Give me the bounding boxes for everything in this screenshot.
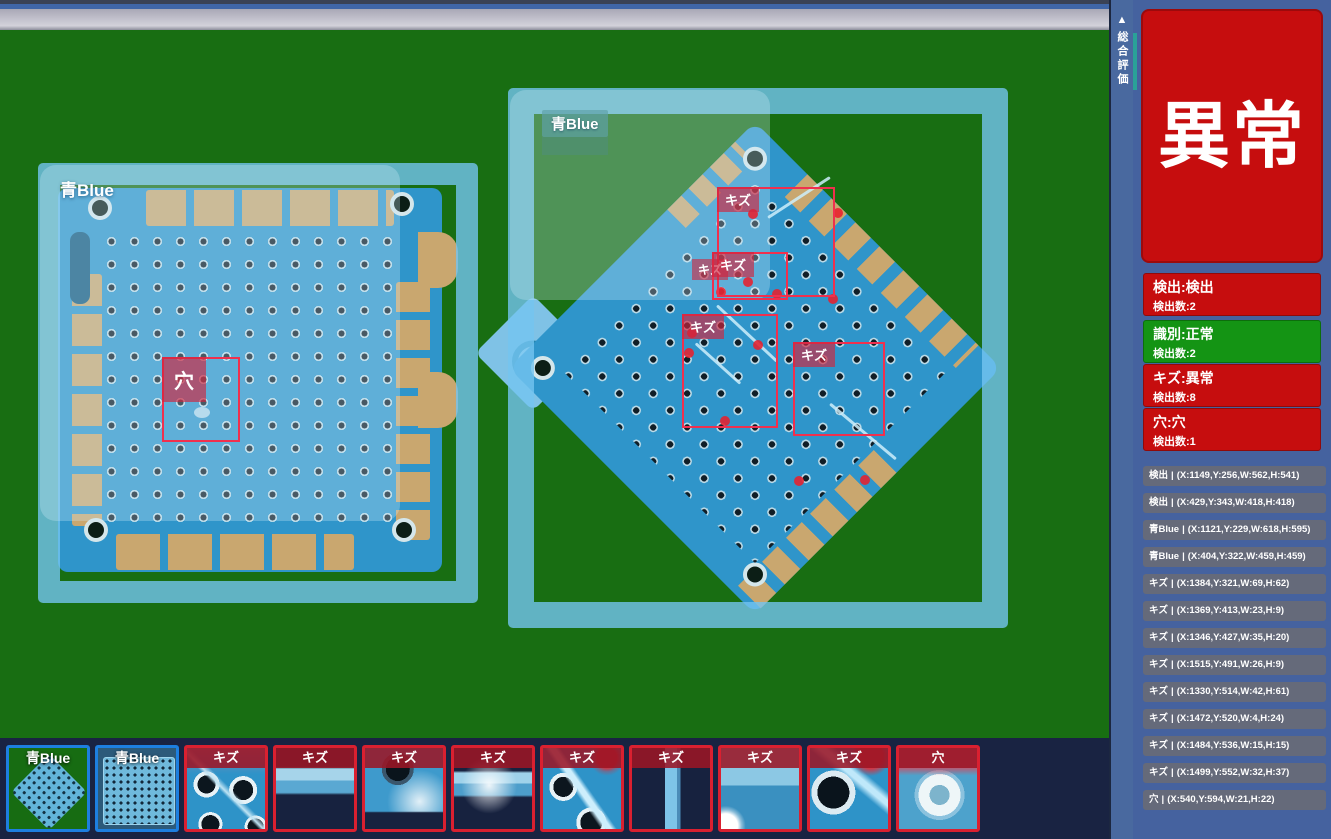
thumbnail-label: キズ — [810, 748, 888, 768]
defect-box-label: キズ — [717, 187, 759, 212]
detection-row-coords: (X:1499,Y:552,W:32,H:37) — [1177, 767, 1290, 778]
detection-row[interactable]: キズ|(X:1384,Y:321,W:69,H:62) — [1143, 574, 1326, 594]
detection-row-coords: (X:540,Y:594,W:21,H:22) — [1167, 794, 1274, 805]
detection-row-label: 検出 — [1149, 470, 1168, 481]
thumbnail-label: キズ — [454, 748, 532, 768]
panel-count: 検出数:2 — [1153, 345, 1311, 361]
stage-ruler-strip — [0, 9, 1109, 30]
detection-row-coords: (X:1369,Y:413,W:23,H:9) — [1177, 605, 1284, 616]
overall-status-text: 異常 — [1158, 77, 1306, 196]
detection-row-coords: (X:1472,Y:520,W:4,H:24) — [1177, 713, 1284, 724]
detection-row[interactable]: 青Blue|(X:404,Y:322,W:459,H:459) — [1143, 547, 1326, 567]
defect-thumbnail[interactable]: キズ — [807, 745, 891, 832]
thumbnail-label: キズ — [187, 748, 265, 768]
detection-row-label: 青Blue — [1149, 524, 1179, 535]
collapse-tab-label: 総合評価 — [1114, 31, 1130, 87]
defect-box-label: キズ — [682, 314, 724, 339]
detection-row-coords: (X:1384,Y:321,W:69,H:62) — [1177, 578, 1290, 589]
detection-row-separator: | — [1171, 686, 1174, 697]
detection-row[interactable]: 穴|(X:540,Y:594,W:21,H:22) — [1143, 790, 1326, 810]
defect-box-scratch[interactable]: キズ — [682, 314, 778, 428]
defect-thumbnail[interactable]: キズ — [362, 745, 446, 832]
detection-row[interactable]: 検出|(X:429,Y:343,W:418,H:418) — [1143, 493, 1326, 513]
defect-dot — [794, 476, 804, 486]
defect-box-hole[interactable]: 穴 — [162, 357, 240, 442]
defect-dot — [860, 475, 870, 485]
defect-box-label: キズ — [793, 342, 835, 367]
defect-thumbnail[interactable]: キズ — [451, 745, 535, 832]
detection-row-label: キズ — [1149, 740, 1168, 751]
thumbnail-label: キズ — [721, 748, 799, 768]
detection-row[interactable]: 青Blue|(X:1121,Y:229,W:618,H:595) — [1143, 520, 1326, 540]
detection-row[interactable]: キズ|(X:1484,Y:536,W:15,H:15) — [1143, 736, 1326, 756]
detection-row[interactable]: キズ|(X:1330,Y:514,W:42,H:61) — [1143, 682, 1326, 702]
defect-thumbnail[interactable]: キズ — [629, 745, 713, 832]
detection-row-separator: | — [1171, 713, 1174, 724]
side-panel-collapse-tab[interactable]: ▲ 総合評価 — [1109, 0, 1133, 839]
detection-row[interactable]: キズ|(X:1472,Y:520,W:4,H:24) — [1143, 709, 1326, 729]
thumbnail-label: キズ — [365, 748, 443, 768]
detection-row-separator: | — [1171, 740, 1174, 751]
defect-box-label: 穴 — [162, 357, 206, 402]
detection-row-separator: | — [1171, 605, 1174, 616]
detection-row-label: キズ — [1149, 632, 1168, 643]
detect-region-left[interactable]: 青Blue — [40, 165, 400, 521]
detection-row-separator: | — [1162, 794, 1165, 805]
result-sidebar: 異常 検出:検出 検出数:2 識別:正常 検出数:2 キズ:異常 検出数:8 穴… — [1133, 0, 1331, 839]
panel-title: 識別:正常 — [1153, 326, 1311, 342]
defect-thumbnail[interactable]: キズ — [184, 745, 268, 832]
thumbnail-strip: 青Blue青Blueキズキズキズキズキズキズキズキズ穴 — [0, 738, 1109, 839]
defect-thumbnail[interactable]: 青Blue — [6, 745, 90, 832]
thumbnail-label: キズ — [276, 748, 354, 768]
defect-thumbnail[interactable]: キズ — [273, 745, 357, 832]
detection-row-coords: (X:1484,Y:536,W:15,H:15) — [1177, 740, 1290, 751]
overlay-label-left: 青Blue — [60, 176, 114, 201]
panel-title: 穴:穴 — [1153, 414, 1311, 430]
detection-row-separator: | — [1171, 659, 1174, 670]
panel-title: 検出:検出 — [1153, 279, 1311, 295]
thumbnail-label: キズ — [632, 748, 710, 768]
thumbnail-label: 青Blue — [98, 748, 176, 768]
detection-row-label: 青Blue — [1149, 551, 1179, 562]
defect-thumbnail[interactable]: キズ — [718, 745, 802, 832]
panel-count: 検出数:2 — [1153, 298, 1311, 314]
detection-row-coords: (X:404,Y:322,W:459,H:459) — [1188, 551, 1306, 562]
summary-panel-hole[interactable]: 穴:穴 検出数:1 — [1143, 408, 1321, 451]
thumbnail-label: 穴 — [899, 748, 977, 768]
detection-row-label: キズ — [1149, 659, 1168, 670]
detection-row-separator: | — [1171, 470, 1174, 481]
detection-row-coords: (X:1346,Y:427,W:35,H:20) — [1177, 632, 1290, 643]
summary-panel-scratch[interactable]: キズ:異常 検出数:8 — [1143, 364, 1321, 407]
detection-row-coords: (X:1149,Y:256,W:562,H:541) — [1177, 470, 1300, 481]
defect-thumbnail[interactable]: 青Blue — [95, 745, 179, 832]
summary-panel-detect[interactable]: 検出:検出 検出数:2 — [1143, 273, 1321, 316]
detection-row[interactable]: キズ|(X:1499,Y:552,W:32,H:37) — [1143, 763, 1326, 783]
detection-row-label: キズ — [1149, 686, 1168, 697]
detection-row[interactable]: キズ|(X:1515,Y:491,W:26,H:9) — [1143, 655, 1326, 675]
detection-row-label: 検出 — [1149, 497, 1168, 508]
detection-row-coords: (X:1330,Y:514,W:42,H:61) — [1177, 686, 1290, 697]
defect-box-label: キズ — [712, 252, 754, 277]
panel-count: 検出数:1 — [1153, 433, 1311, 449]
detection-row[interactable]: 検出|(X:1149,Y:256,W:562,H:541) — [1143, 466, 1326, 486]
detection-row-label: キズ — [1149, 578, 1168, 589]
detection-row-coords: (X:1515,Y:491,W:26,H:9) — [1177, 659, 1284, 670]
inspection-viewport[interactable]: 青Blue 青Blue キズ キズ キズ キズ — [0, 0, 1109, 738]
panel-count: 検出数:8 — [1153, 389, 1311, 405]
detection-row[interactable]: キズ|(X:1346,Y:427,W:35,H:20) — [1143, 628, 1326, 648]
detection-row-label: 穴 — [1149, 794, 1159, 805]
inspection-app: 青Blue 青Blue キズ キズ キズ キズ — [0, 0, 1331, 839]
collapse-arrow-icon: ▲ — [1117, 14, 1128, 26]
detection-row-separator: | — [1171, 497, 1174, 508]
thumbnail-label: キズ — [543, 748, 621, 768]
detection-row-label: キズ — [1149, 713, 1168, 724]
panel-title: キズ:異常 — [1153, 370, 1311, 386]
detection-row-separator: | — [1171, 767, 1174, 778]
sidebar-accent-bar — [1133, 33, 1137, 90]
thumbnail-label: 青Blue — [9, 748, 87, 768]
detection-row-separator: | — [1182, 551, 1185, 562]
defect-box-scratch[interactable]: キズ — [712, 252, 788, 300]
overall-status-panel: 異常 — [1141, 9, 1323, 263]
defect-box-scratch[interactable]: キズ — [793, 342, 885, 436]
defect-thumbnail[interactable]: キズ — [540, 745, 624, 832]
glare-spot — [194, 407, 210, 418]
overlay-label-right: 青Blue — [542, 110, 608, 137]
detection-row[interactable]: キズ|(X:1369,Y:413,W:23,H:9) — [1143, 601, 1326, 621]
defect-thumbnail[interactable]: 穴 — [896, 745, 980, 832]
detection-row-separator: | — [1171, 632, 1174, 643]
detection-row-coords: (X:429,Y:343,W:418,H:418) — [1177, 497, 1295, 508]
detection-row-separator: | — [1182, 524, 1185, 535]
detection-row-label: キズ — [1149, 605, 1168, 616]
detection-row-separator: | — [1171, 578, 1174, 589]
detection-row-coords: (X:1121,Y:229,W:618,H:595) — [1188, 524, 1311, 535]
detection-row-label: キズ — [1149, 767, 1168, 778]
summary-panel-classify[interactable]: 識別:正常 検出数:2 — [1143, 320, 1321, 363]
